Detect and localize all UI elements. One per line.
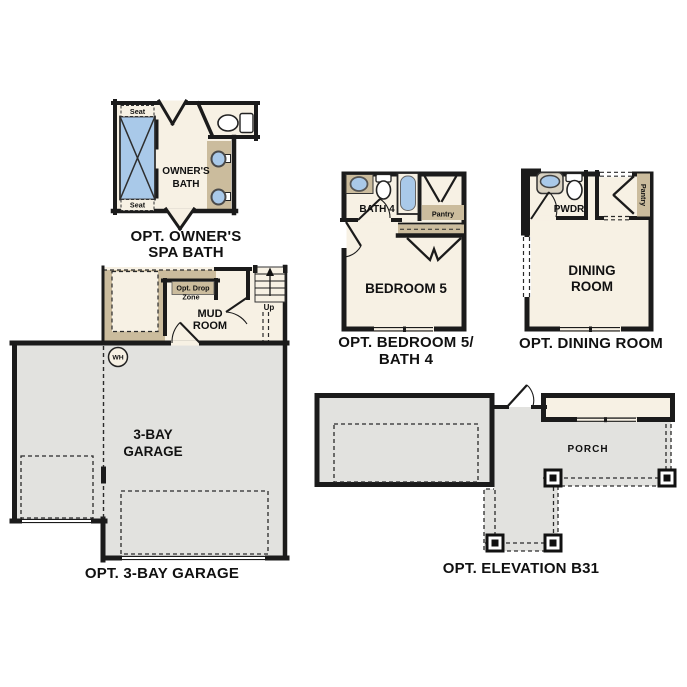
floorplan-drawing: Seat Seat OWNER'S BATH OPT. OWNER'S SPA …: [0, 0, 687, 687]
powder-toilet: [566, 174, 582, 200]
owners-bath-label-2: BATH: [172, 179, 199, 190]
house-outline: [544, 396, 673, 420]
porch-column: [659, 470, 675, 486]
mud-room-label-1: MUD: [197, 308, 222, 320]
entry-door-swing: [527, 385, 534, 406]
garage-room-label-2: GARAGE: [123, 444, 182, 459]
house-windows: [577, 417, 637, 422]
water-heater: WH: [109, 348, 128, 367]
bedroom5-plan: Pantry: [338, 173, 474, 368]
dining-pantry-label: Pantry: [639, 184, 648, 206]
garage-door-left: [22, 519, 91, 524]
dining-label-2: ROOM: [571, 279, 613, 294]
bedroom5-title-1: OPT. BEDROOM 5/: [338, 334, 474, 351]
porch-column: [545, 470, 561, 486]
up-label: Up: [264, 303, 275, 312]
powder-label: PWDR: [554, 204, 585, 215]
elevation-title: OPT. ELEVATION B31: [443, 560, 599, 577]
floorplan-options-sheet: Seat Seat OWNER'S BATH OPT. OWNER'S SPA …: [0, 0, 687, 687]
spa-bath-title-2: SPA BATH: [148, 244, 224, 261]
shower: Seat Seat: [120, 106, 157, 211]
powder-sink: [537, 173, 563, 194]
porch-label: PORCH: [567, 444, 608, 455]
bedroom5-label: BEDROOM 5: [365, 281, 447, 296]
spa-bath-title-1: OPT. OWNER'S: [131, 228, 242, 245]
porch-slab: [484, 407, 671, 551]
bathtub: [398, 173, 419, 214]
mud-room-label-2: ROOM: [193, 320, 227, 332]
entry-opening-bottom: [166, 209, 194, 229]
dining-plan: Pantry PWDR DINING ROOM OPT. DININ: [519, 169, 663, 353]
garage-room-label-1: 3-BAY: [133, 427, 172, 442]
porch-column: [487, 535, 503, 551]
drop-zone-label-1: Opt. Drop: [176, 284, 210, 293]
bedroom5-title-2: BATH 4: [379, 351, 434, 368]
bedroom-windows: [374, 327, 434, 333]
garage-title: OPT. 3-BAY GARAGE: [85, 565, 239, 582]
dining-windows: [560, 327, 621, 333]
garage-outline: [317, 396, 492, 485]
bath4-label: BATH 4: [359, 204, 395, 215]
pantry-label: Pantry: [432, 210, 454, 219]
bath4-sink: [346, 175, 373, 194]
seat-top-label: Seat: [130, 107, 146, 116]
dining-title: OPT. DINING ROOM: [519, 335, 663, 352]
porch-column: [545, 535, 561, 551]
garage-door-main: [122, 556, 265, 561]
owners-bath-label-1: OWNER'S: [162, 166, 210, 177]
entry-door-leaf: [507, 385, 527, 407]
drop-zone-label-2: Zone: [182, 293, 199, 302]
dining-label-1: DINING: [568, 263, 615, 278]
elevation-plan: PORCH OPT. ELEVATION B31: [317, 385, 675, 577]
seat-bottom-label: Seat: [130, 201, 146, 210]
water-heater-label: WH: [112, 355, 123, 362]
spa-bath-plan: Seat Seat OWNER'S BATH OPT. OWNER'S SPA …: [113, 101, 258, 262]
bath4-toilet: [376, 175, 391, 200]
garage-plan: Opt. Drop Zone MUD ROOM Up: [12, 265, 288, 582]
